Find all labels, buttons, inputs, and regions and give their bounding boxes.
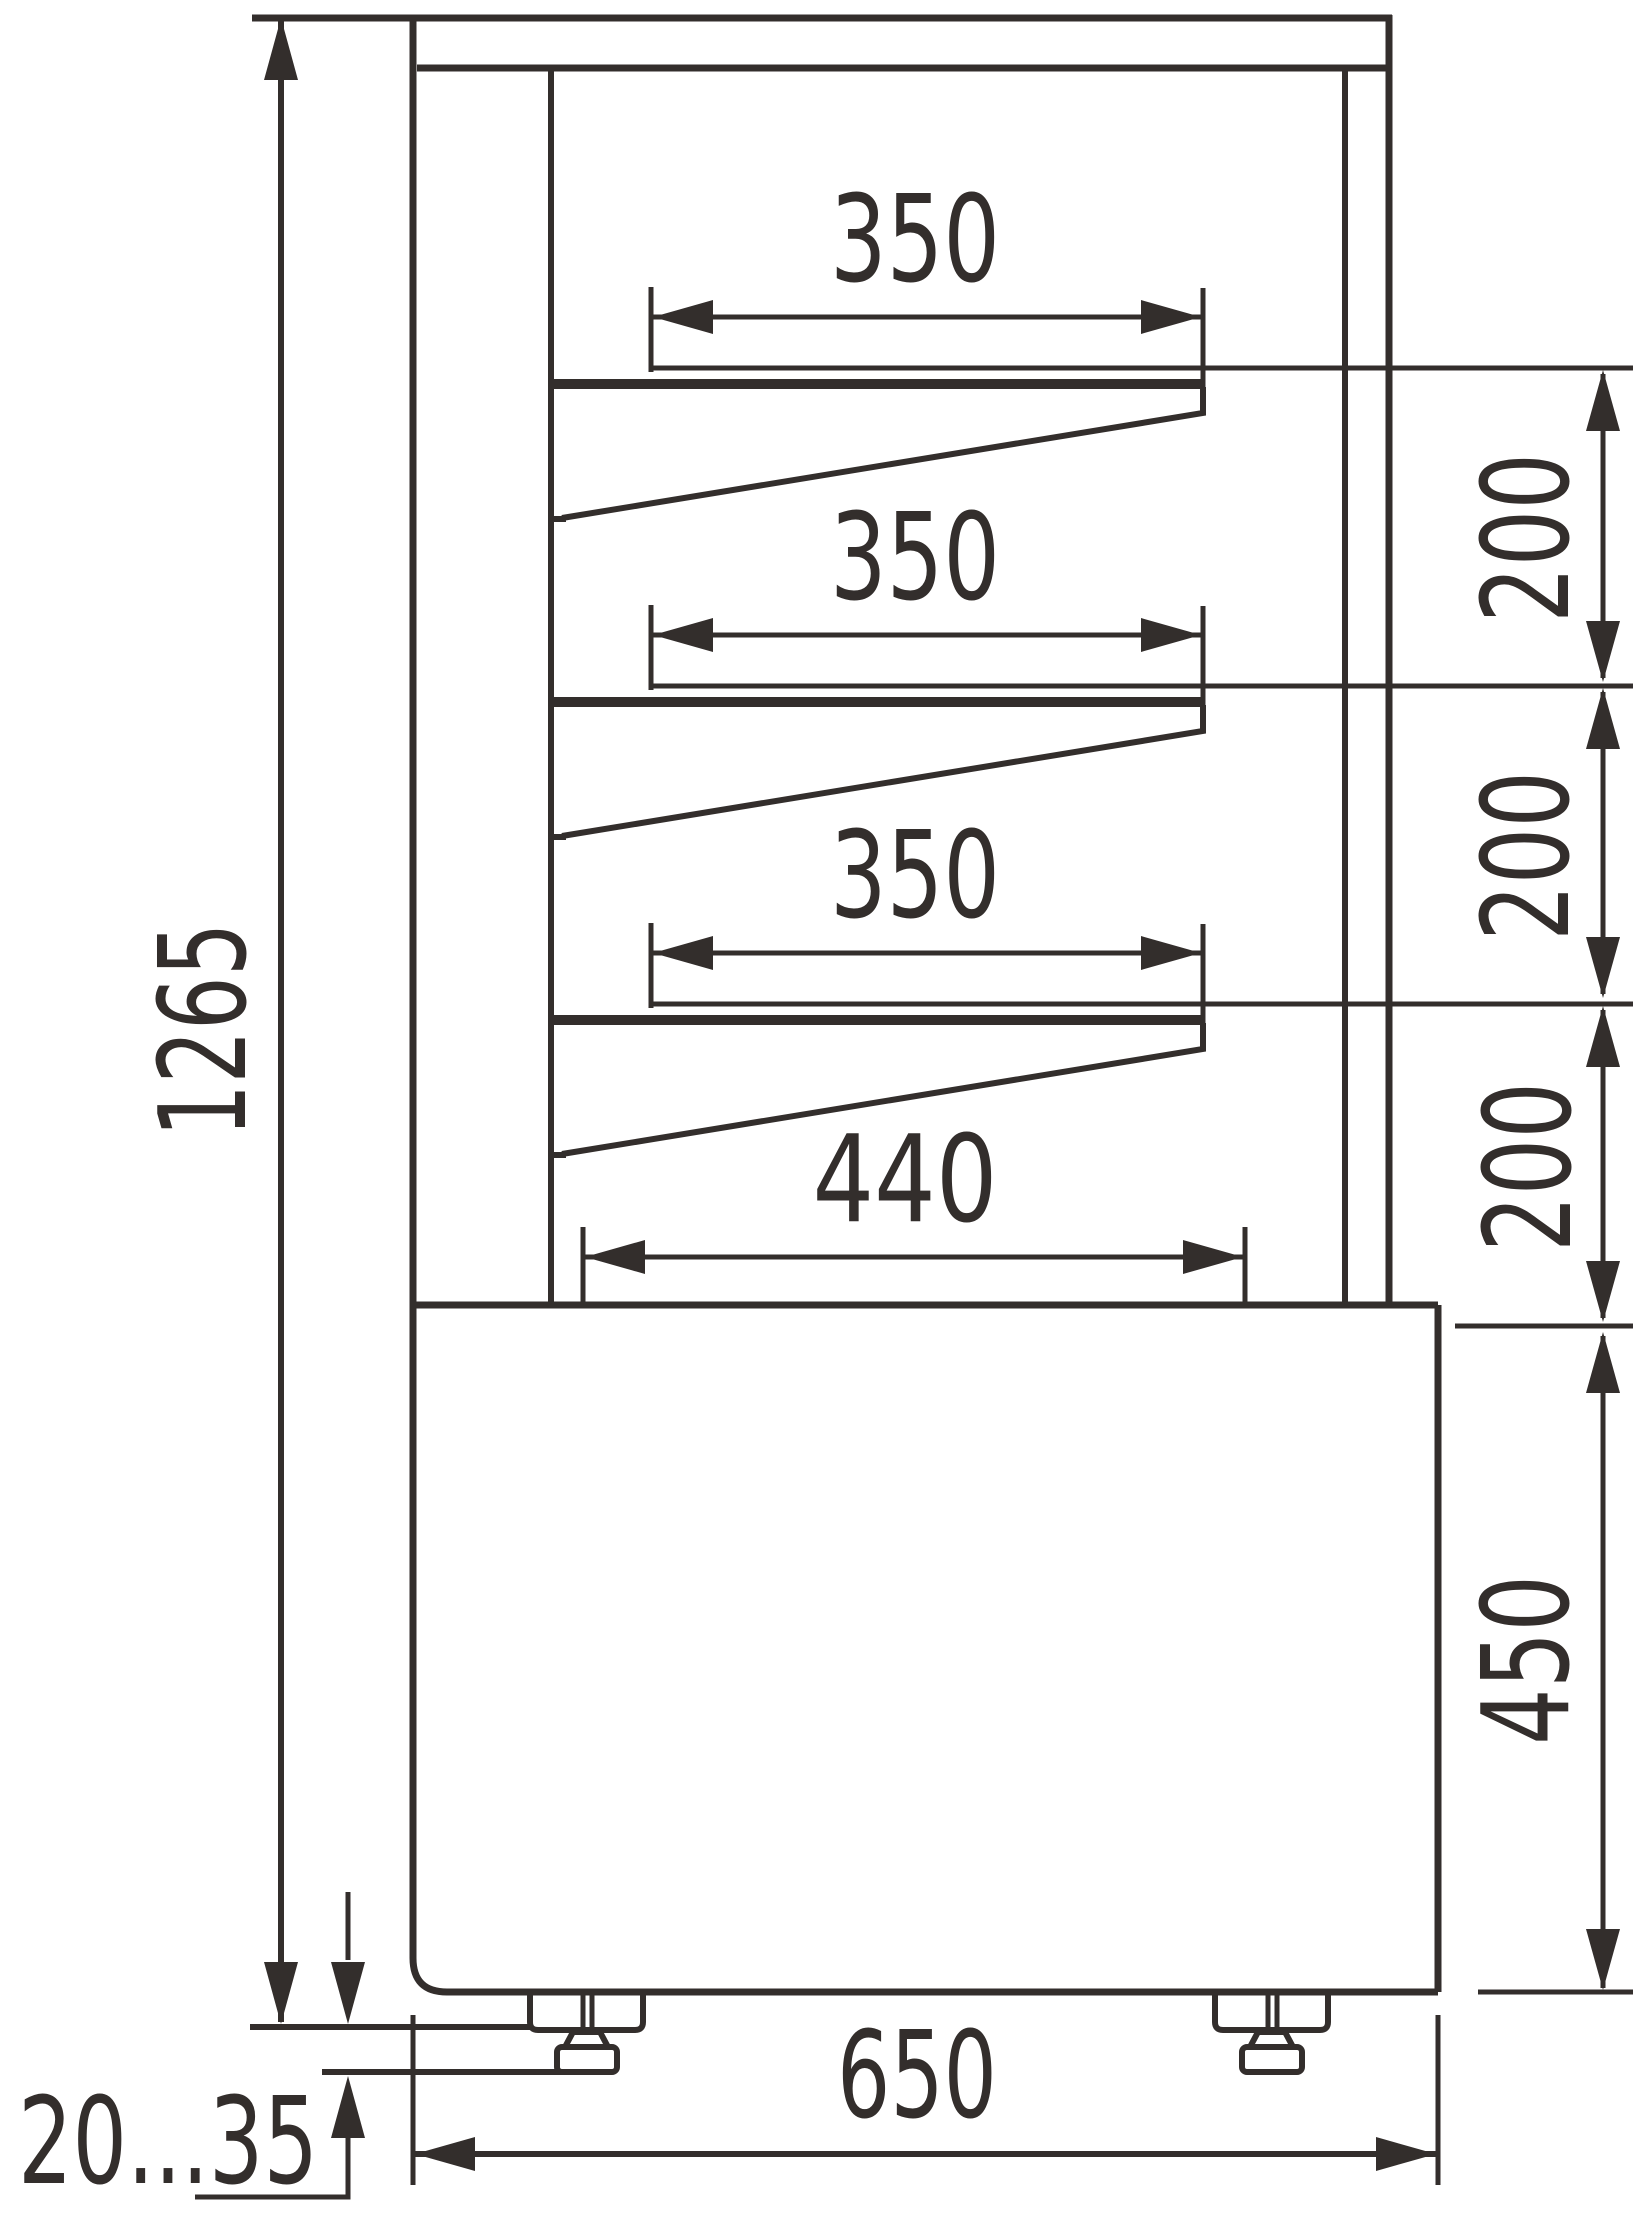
arrow-down-icon [1586, 1261, 1620, 1322]
leg-right-foot [1242, 2047, 1302, 2072]
dim-shelf-1-label: 350 [830, 171, 1000, 310]
leg-right-plate [1215, 1994, 1328, 2030]
arrow-right-icon [1376, 2137, 1436, 2171]
arrow-left-icon [585, 1240, 645, 1274]
arrow-down-icon [1586, 937, 1620, 998]
arrow-right-icon [1141, 618, 1201, 652]
dim-spacing-3: 200 [1455, 1006, 1633, 1326]
arrow-down-icon [1586, 621, 1620, 682]
arrow-up-icon [331, 2076, 365, 2138]
arrow-down-icon [264, 1962, 298, 2024]
dim-base-height-label: 450 [1458, 1575, 1597, 1745]
leg-right [1215, 1994, 1328, 2072]
arrow-up-icon [1586, 370, 1620, 431]
drawing-sheet: 1265 350 350 350 200 200 [0, 0, 1650, 2218]
dim-total-height: 1265 [135, 18, 298, 2024]
dim-overall-depth-label: 650 [837, 2007, 997, 2146]
arrow-right-icon [1141, 300, 1201, 334]
arrow-left-icon [653, 618, 713, 652]
dim-leg-adjustment-label: 20...35 [18, 2073, 318, 2212]
arrow-up-icon [264, 18, 298, 80]
dim-bottom-shelf-label: 440 [813, 1111, 998, 1250]
dim-spacing-2-label: 200 [1458, 771, 1597, 941]
dim-shelf-3-label: 350 [830, 807, 1000, 946]
arrow-up-icon [1586, 1006, 1620, 1067]
dim-spacing-3-label: 200 [1460, 1082, 1599, 1252]
arrow-left-icon [653, 300, 713, 334]
leg-left-foot [557, 2047, 617, 2072]
arrow-left-icon [415, 2137, 475, 2171]
base-left-edge [413, 1305, 447, 1992]
dim-shelf-2-label: 350 [830, 489, 1000, 628]
arrow-right-icon [1183, 1240, 1243, 1274]
arrow-up-icon [1586, 1332, 1620, 1393]
dim-spacing-2: 200 [1458, 688, 1620, 998]
dim-spacing-1-label: 200 [1458, 453, 1597, 623]
arrow-down-icon [331, 1962, 365, 2024]
dim-shelf-2: 350 [651, 489, 1203, 705]
arrow-up-icon [1586, 688, 1620, 749]
dim-shelf-3: 350 [651, 807, 1203, 1023]
dim-total-height-label: 1265 [135, 923, 274, 1138]
dim-leg-adjustment: 20...35 [18, 1892, 612, 2212]
leg-left [530, 1994, 643, 2072]
dim-spacing-1: 200 [1458, 370, 1620, 682]
dim-bottom-shelf: 440 [583, 1111, 1245, 1307]
arrow-down-icon [1586, 1929, 1620, 1990]
dim-shelf-1: 350 [651, 171, 1203, 387]
arrow-left-icon [653, 936, 713, 970]
arrow-right-icon [1141, 936, 1201, 970]
technical-drawing: 1265 350 350 350 200 200 [0, 0, 1650, 2218]
leg-left-screw [583, 1994, 592, 2030]
dim-base-height: 450 [1458, 1332, 1633, 1992]
leg-right-screw [1268, 1994, 1277, 2030]
leg-left-plate [530, 1994, 643, 2030]
